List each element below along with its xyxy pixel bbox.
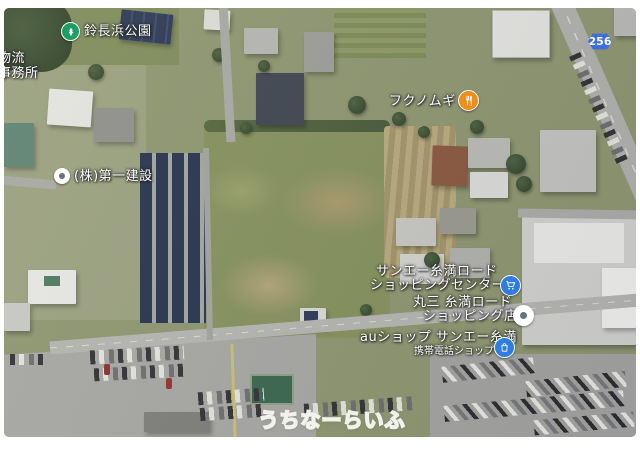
daiichi-label: (株)第一建設: [74, 170, 153, 184]
car-pair: [10, 354, 44, 365]
aushop-label-line2: 携帯電話ショップ: [414, 346, 494, 357]
fukunomugi-label: フクノムギ: [389, 95, 456, 109]
park-label: 鈴長浜公園: [84, 25, 152, 39]
red-car: [104, 364, 110, 375]
corner-label-line1: 物流: [4, 52, 25, 66]
red-car: [166, 378, 172, 389]
top-road: [223, 8, 231, 142]
screenshot-frame: 鈴長浜公園 物流 事務所 (株)第一建設 256 フクノムギ サンエー糸満ロード…: [0, 0, 640, 452]
marusan-label-line2: ショッピング店: [423, 310, 518, 324]
sanei-label-line2: ショッピングセンター: [370, 279, 505, 293]
watermark: うちなーらいふ: [252, 404, 412, 433]
left-road-stub: [4, 180, 56, 185]
aushop-label-line1: auショップ サンエー糸満: [360, 331, 517, 345]
generic-place-icon: [54, 168, 70, 184]
access-road: [518, 213, 636, 215]
park-tree-icon: [61, 22, 80, 41]
corner-label-line2: 事務所: [4, 67, 39, 81]
field-track: [206, 148, 210, 340]
parking-driveway: [50, 354, 56, 437]
shopping-bag-icon: [494, 337, 515, 358]
satellite-map[interactable]: 鈴長浜公園 物流 事務所 (株)第一建設 256 フクノムギ サンエー糸満ロード…: [4, 8, 636, 437]
shopping-cart-icon: [500, 275, 521, 296]
marusan-label-line1: 丸三 糸満ロード: [413, 296, 512, 310]
generic-place-icon: [513, 305, 534, 326]
restaurant-icon: [458, 90, 479, 111]
sanei-label-line1: サンエー糸満ロード: [376, 265, 498, 279]
